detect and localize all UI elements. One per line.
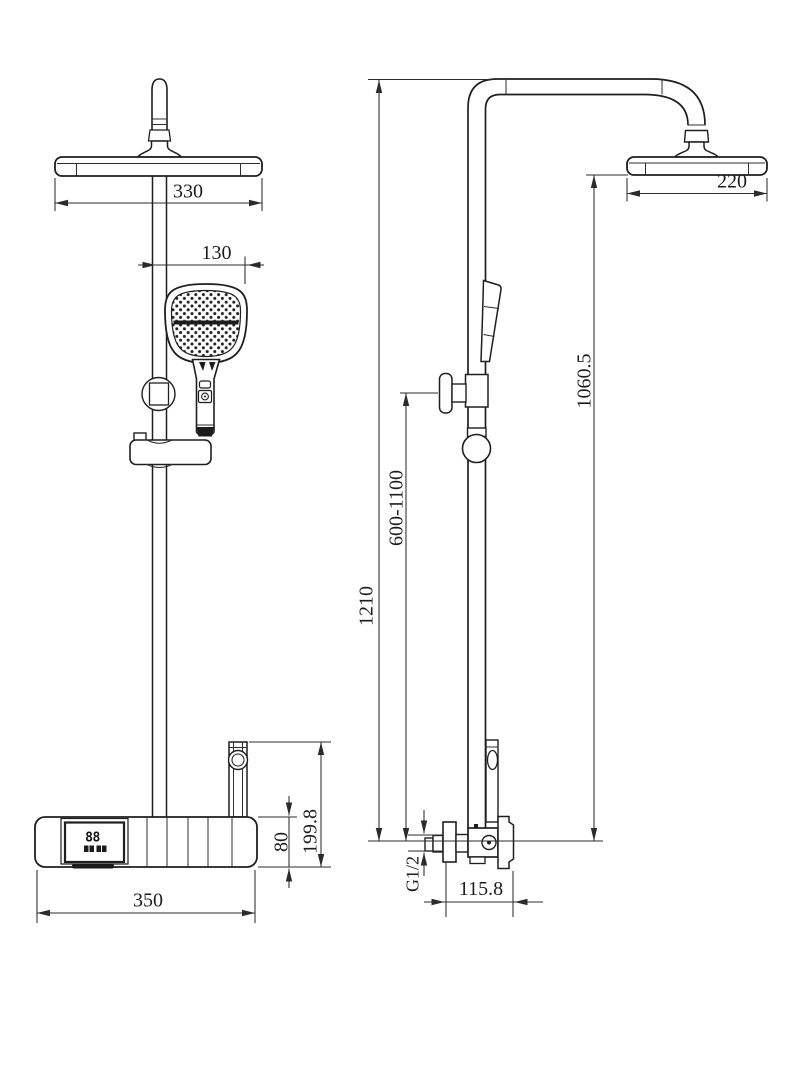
dim-130: 130 (138, 242, 264, 284)
riser-pipe-front (153, 176, 167, 817)
dim-label-1060-5: 1060.5 (574, 354, 596, 409)
inlet-nipple (425, 838, 433, 851)
handle-button (200, 381, 211, 388)
hand-shower-side (481, 281, 501, 362)
display-shadow-bar (72, 864, 114, 869)
side-dimensions: 220 1060.5 600-1100 1210 (356, 80, 768, 918)
front-view: 88 330 130 (35, 79, 331, 923)
dim-115-8: 115.8 (424, 862, 543, 917)
dim-label-g1-2: G1/2 (403, 856, 423, 892)
dim-80: 80 (258, 796, 297, 888)
wall-valve-side (425, 817, 514, 869)
dim-label-350: 350 (133, 890, 163, 912)
dim-label-330: 330 (173, 181, 203, 203)
shower-system-dimension-drawing: 88 330 130 (0, 0, 790, 1076)
dim-600-1100: 600-1100 (386, 393, 439, 841)
gooseneck-riser-side (468, 79, 709, 829)
hand-shower-front (165, 284, 247, 437)
dim-label-130: 130 (202, 242, 232, 264)
slide-bracket-front (130, 433, 211, 468)
hand-shower-holder-side (440, 374, 489, 414)
dim-g1-2: G1/2 (403, 810, 444, 892)
valve-front-flange (443, 822, 456, 862)
overhead-shower-front (55, 157, 262, 176)
hand-shower-holder-front (142, 378, 175, 411)
hose-swivel-side (463, 428, 491, 463)
dim-label-220: 220 (717, 171, 747, 193)
technical-drawing-page: 88 330 130 (0, 0, 790, 1076)
display-screen: 88 (61, 819, 128, 865)
spray-face-bar (174, 321, 239, 325)
handle-base (197, 427, 215, 437)
display-digits: 88 (85, 831, 100, 846)
hook-front (229, 742, 248, 817)
dim-label-199-8: 199.8 (300, 809, 322, 854)
side-view: 220 1060.5 600-1100 1210 (356, 79, 768, 917)
dim-label-1210: 1210 (356, 586, 378, 626)
control-base-front: 88 (35, 817, 257, 869)
dim-350: 350 (37, 870, 255, 923)
dim-330: 330 (55, 178, 262, 211)
dim-label-115-8: 115.8 (459, 878, 503, 900)
valve-wall-flange (498, 817, 514, 869)
head-connector-side (675, 142, 719, 157)
dim-label-80: 80 (271, 832, 293, 852)
dim-label-600-1100: 600-1100 (386, 470, 408, 546)
dim-1060-5: 1060.5 (574, 175, 629, 841)
head-connector-front (138, 141, 182, 157)
hook-side (486, 740, 498, 822)
